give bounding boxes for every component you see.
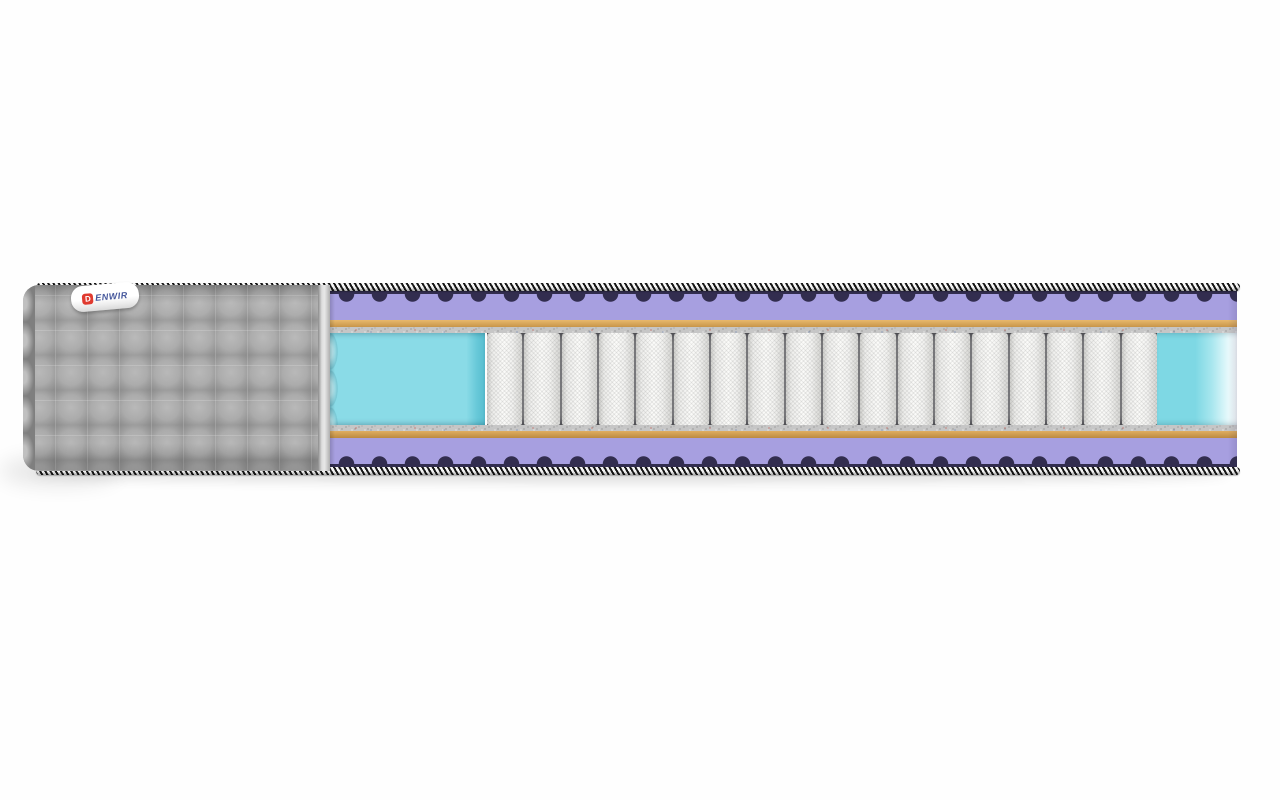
brand-label-text: ENWIR: [95, 290, 128, 303]
pocket-spring-block: [487, 333, 1157, 425]
pocket-spring: [674, 333, 709, 425]
pocket-spring: [562, 333, 597, 425]
right-end-shade: [1228, 291, 1237, 467]
comfort-foam-bottom: [330, 438, 1237, 454]
pocket-spring: [972, 333, 1007, 425]
coir-layer-bottom: [330, 431, 1237, 438]
quilted-fabric-cover: [23, 285, 330, 471]
pocket-spring: [898, 333, 933, 425]
pocket-spring: [935, 333, 970, 425]
pocket-spring: [524, 333, 559, 425]
pocket-spring: [1010, 333, 1045, 425]
pocket-spring: [1122, 333, 1157, 425]
pocket-spring: [786, 333, 821, 425]
pocket-spring: [860, 333, 895, 425]
pocket-spring: [748, 333, 783, 425]
pocket-spring: [636, 333, 671, 425]
pocket-spring: [823, 333, 858, 425]
cover-scalloped-edge: [23, 285, 35, 471]
mattress-cutaway-illustration: D ENWIR: [0, 0, 1280, 800]
wave-contour-foam-bottom: [330, 454, 1237, 467]
side-support-foam-left: [330, 333, 485, 425]
pocket-spring: [599, 333, 634, 425]
cover-cut-edge: [318, 285, 330, 471]
pocket-spring: [1084, 333, 1119, 425]
pocket-spring: [487, 333, 522, 425]
pocket-spring: [1047, 333, 1082, 425]
cut-edge-shadow: [330, 291, 335, 467]
side-support-foam-right: [1157, 333, 1237, 425]
wave-contour-foam-top: [330, 291, 1237, 304]
spring-core: [330, 333, 1237, 425]
coir-layer-top: [330, 320, 1237, 327]
comfort-foam-top: [330, 304, 1237, 320]
pocket-spring: [711, 333, 746, 425]
brand-logo-icon: D: [82, 293, 94, 305]
